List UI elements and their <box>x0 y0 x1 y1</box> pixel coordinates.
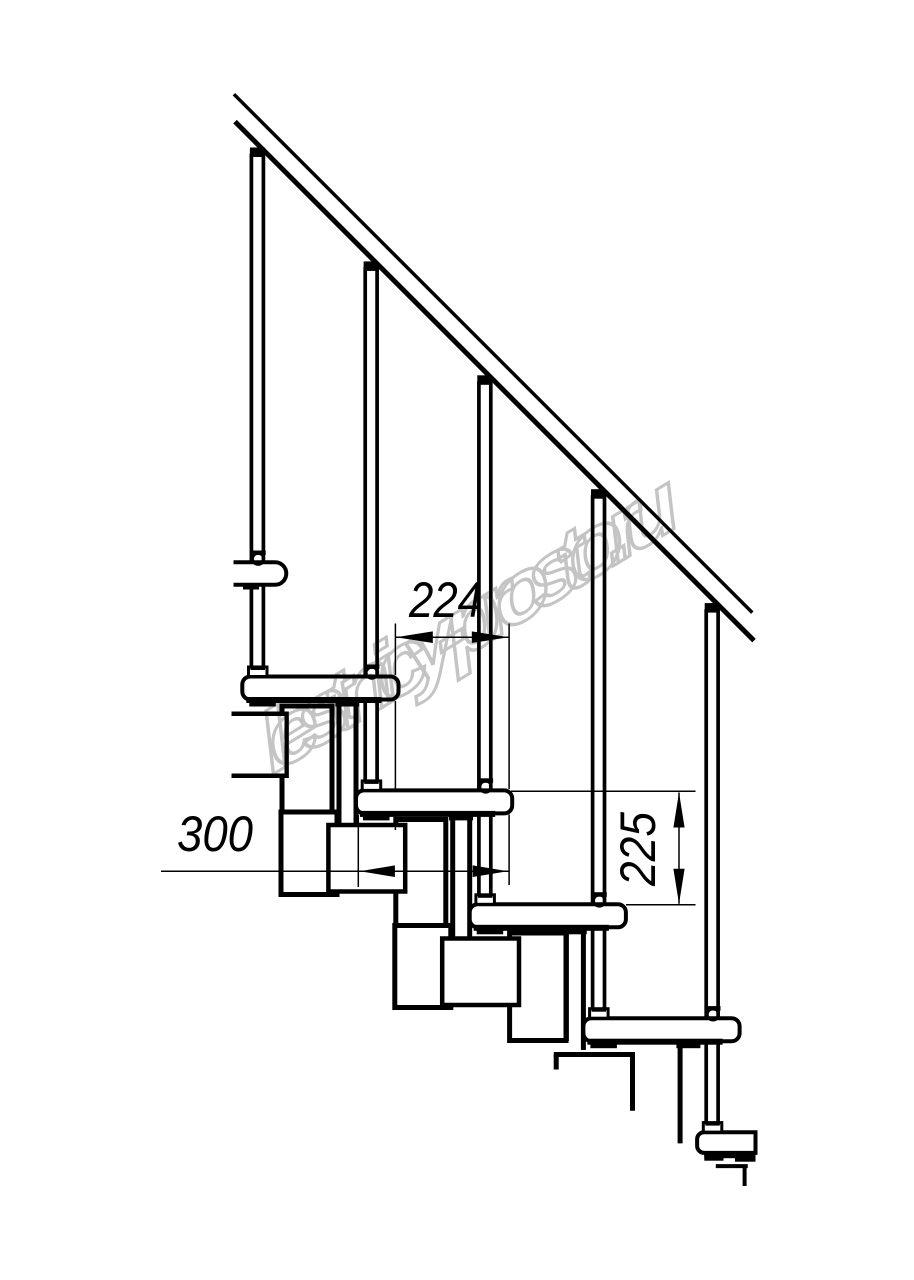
svg-text:300: 300 <box>177 806 253 862</box>
svg-text:225: 225 <box>610 812 666 887</box>
svg-text:lestnicy-prosto.ru: lestnicy-prosto.ru <box>248 454 689 792</box>
